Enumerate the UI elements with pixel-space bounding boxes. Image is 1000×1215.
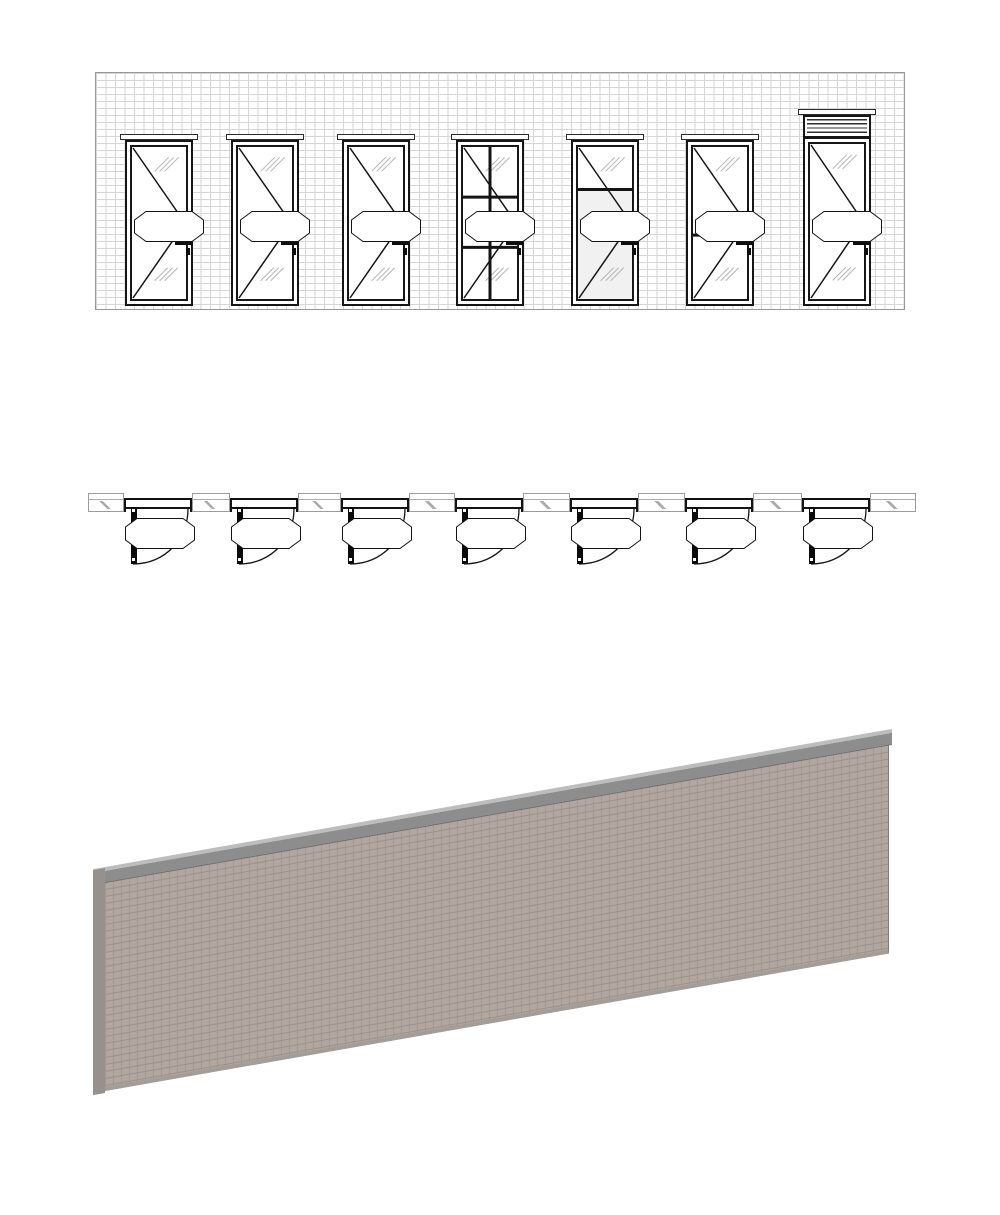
- door-tag-elevation: [465, 211, 535, 242]
- door-lock-icon: [517, 248, 522, 255]
- leaf-hinge-dot: [693, 509, 696, 512]
- door-lock-icon: [292, 248, 297, 255]
- door-handle-icon: [392, 242, 409, 245]
- plan-jamb-tick: [124, 499, 126, 512]
- door-tag-plan: [342, 518, 412, 549]
- door-tag-elevation: [134, 211, 204, 242]
- door-tag-elevation: [580, 211, 650, 242]
- plan-jamb-tick: [570, 499, 572, 512]
- door-tag-plan: [125, 518, 195, 549]
- door-tag-elevation: [812, 211, 882, 242]
- plan-jamb-tick: [868, 499, 870, 512]
- door-louver-transom: [803, 115, 871, 138]
- door-tag-elevation: [351, 211, 421, 242]
- leaf-end-dot: [349, 558, 352, 561]
- door-tag-plan: [686, 518, 756, 549]
- elevation-door-wg-89: [456, 134, 524, 306]
- plan-jamb-tick: [685, 499, 687, 512]
- door-handle-icon: [853, 242, 870, 245]
- louver-slats-icon: [807, 119, 867, 134]
- door-tag-plan: [231, 518, 301, 549]
- door-lock-icon: [403, 248, 408, 255]
- elevation-door-wg-90: [571, 134, 639, 306]
- door-handle-icon: [506, 242, 523, 245]
- leaf-hinge-dot: [349, 509, 352, 512]
- door-handle-icon: [736, 242, 753, 245]
- plan-jamb-tick: [190, 499, 192, 512]
- door-lock-icon: [632, 248, 637, 255]
- plan-jamb-tick: [296, 499, 298, 512]
- leaf-hinge-dot: [238, 509, 241, 512]
- 3d-wall: [105, 744, 889, 1091]
- plan-view: [88, 490, 916, 590]
- plan-jamb-tick: [802, 499, 804, 512]
- door-tag-plan: [803, 518, 873, 549]
- plan-jamb-tick: [341, 499, 343, 512]
- door-tag-plan: [456, 518, 526, 549]
- door-handle-icon: [621, 242, 638, 245]
- door-lock-icon: [747, 248, 752, 255]
- door-lock-icon: [864, 248, 869, 255]
- elevation-door-wg-88: [342, 134, 410, 306]
- elevation-door-wg-91: [686, 134, 754, 306]
- door-tag-elevation: [240, 211, 310, 242]
- elevation-wall: [95, 72, 905, 310]
- plan-jamb-tick: [636, 499, 638, 512]
- leaf-end-dot: [693, 558, 696, 561]
- leaf-hinge-dot: [132, 509, 135, 512]
- plan-jamb-tick: [455, 499, 457, 512]
- door-handle-icon: [281, 242, 298, 245]
- 3d-wall-cap: [93, 729, 892, 885]
- door-tag-elevation: [695, 211, 765, 242]
- door-lock-icon: [186, 248, 191, 255]
- leaf-end-dot: [132, 558, 135, 561]
- leaf-end-dot: [810, 558, 813, 561]
- plan-jamb-tick: [751, 499, 753, 512]
- door-handle-icon: [175, 242, 192, 245]
- plan-jamb-tick: [230, 499, 232, 512]
- plan-jamb-tick: [521, 499, 523, 512]
- elevation-door-wg-87: [231, 134, 299, 306]
- plan-jamb-tick: [407, 499, 409, 512]
- leaf-end-dot: [238, 558, 241, 561]
- leaf-hinge-dot: [578, 509, 581, 512]
- leaf-end-dot: [463, 558, 466, 561]
- leaf-hinge-dot: [463, 509, 466, 512]
- elevation-door-wg-92: [803, 109, 871, 306]
- elevation-door-wg-86: [125, 134, 193, 306]
- door-tag-plan: [571, 518, 641, 549]
- leaf-hinge-dot: [810, 509, 813, 512]
- 3d-wall-end-face: [93, 868, 105, 1095]
- leaf-end-dot: [578, 558, 581, 561]
